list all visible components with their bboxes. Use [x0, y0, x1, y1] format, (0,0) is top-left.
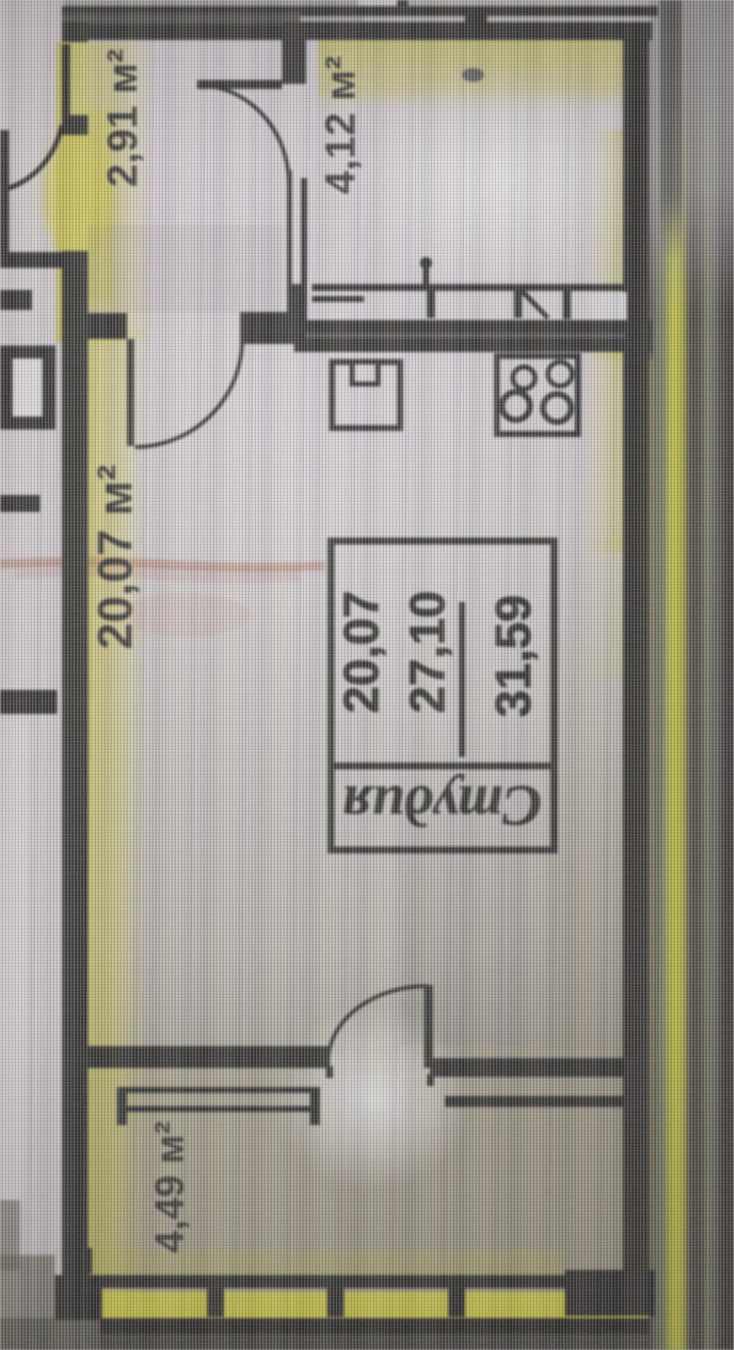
svg-text:20,07: 20,07 [335, 591, 389, 714]
svg-text:20,07 м²: 20,07 м² [90, 465, 143, 650]
svg-text:31,59: 31,59 [487, 595, 541, 718]
svg-text:2,91 м²: 2,91 м² [99, 49, 146, 187]
svg-text:Студия: Студия [342, 774, 542, 839]
svg-text:27,10: 27,10 [401, 591, 455, 714]
svg-text:4,49 м²: 4,49 м² [148, 1121, 192, 1253]
svg-text:4,12 м²: 4,12 м² [317, 56, 364, 194]
